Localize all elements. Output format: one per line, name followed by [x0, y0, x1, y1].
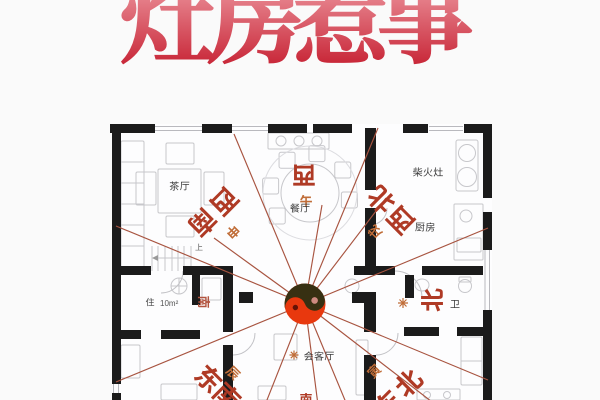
svg-text:10m²: 10m²	[160, 299, 179, 308]
